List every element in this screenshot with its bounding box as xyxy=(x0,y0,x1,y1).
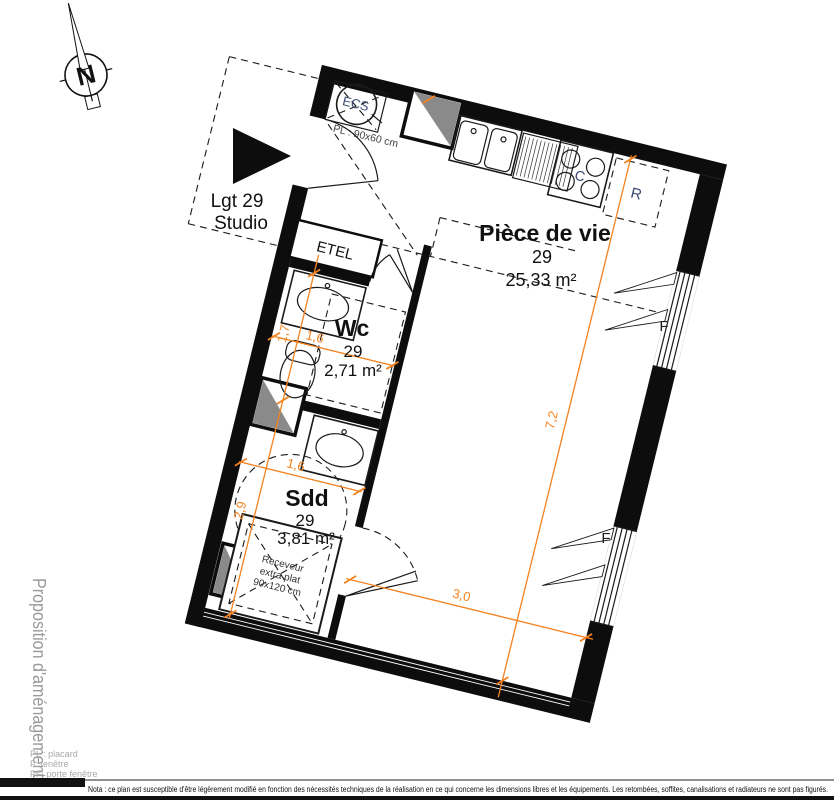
legend-item-porte-fenetre: PF: porte fenêtre xyxy=(30,769,98,779)
floor-plan-canvas: ECS PL : 90x60 cm xyxy=(0,0,834,800)
bathroom-name: Sdd xyxy=(285,485,328,511)
footer-left-bar xyxy=(0,778,85,787)
living-room-name: Pièce de vie xyxy=(479,220,611,246)
shaft-wc xyxy=(250,378,306,436)
plan-side-title: Proposition d'aménagement xyxy=(29,578,49,778)
living-room-lot: 29 xyxy=(532,247,552,267)
wc-name: Wc xyxy=(335,315,370,341)
wc-area: 2,71 m² xyxy=(324,361,382,380)
living-room-area: 25,33 m² xyxy=(505,270,576,290)
page-bottom-border xyxy=(0,796,834,800)
bathroom-area: 3,81 m² xyxy=(277,529,335,548)
bathroom-lot: 29 xyxy=(296,511,315,530)
window-upper-label: F xyxy=(659,318,668,335)
legend-item-placard: PL : placard xyxy=(30,749,78,759)
unit-number: Lgt 29 xyxy=(211,191,264,212)
footer-note: Nota : ce plan est susceptible d'être lé… xyxy=(88,785,828,794)
unit-type: Studio xyxy=(214,213,268,234)
window-lower-label: F xyxy=(601,530,610,547)
wc-lot: 29 xyxy=(344,342,363,361)
legend-item-fenetre: F: fenêtre xyxy=(30,759,69,769)
